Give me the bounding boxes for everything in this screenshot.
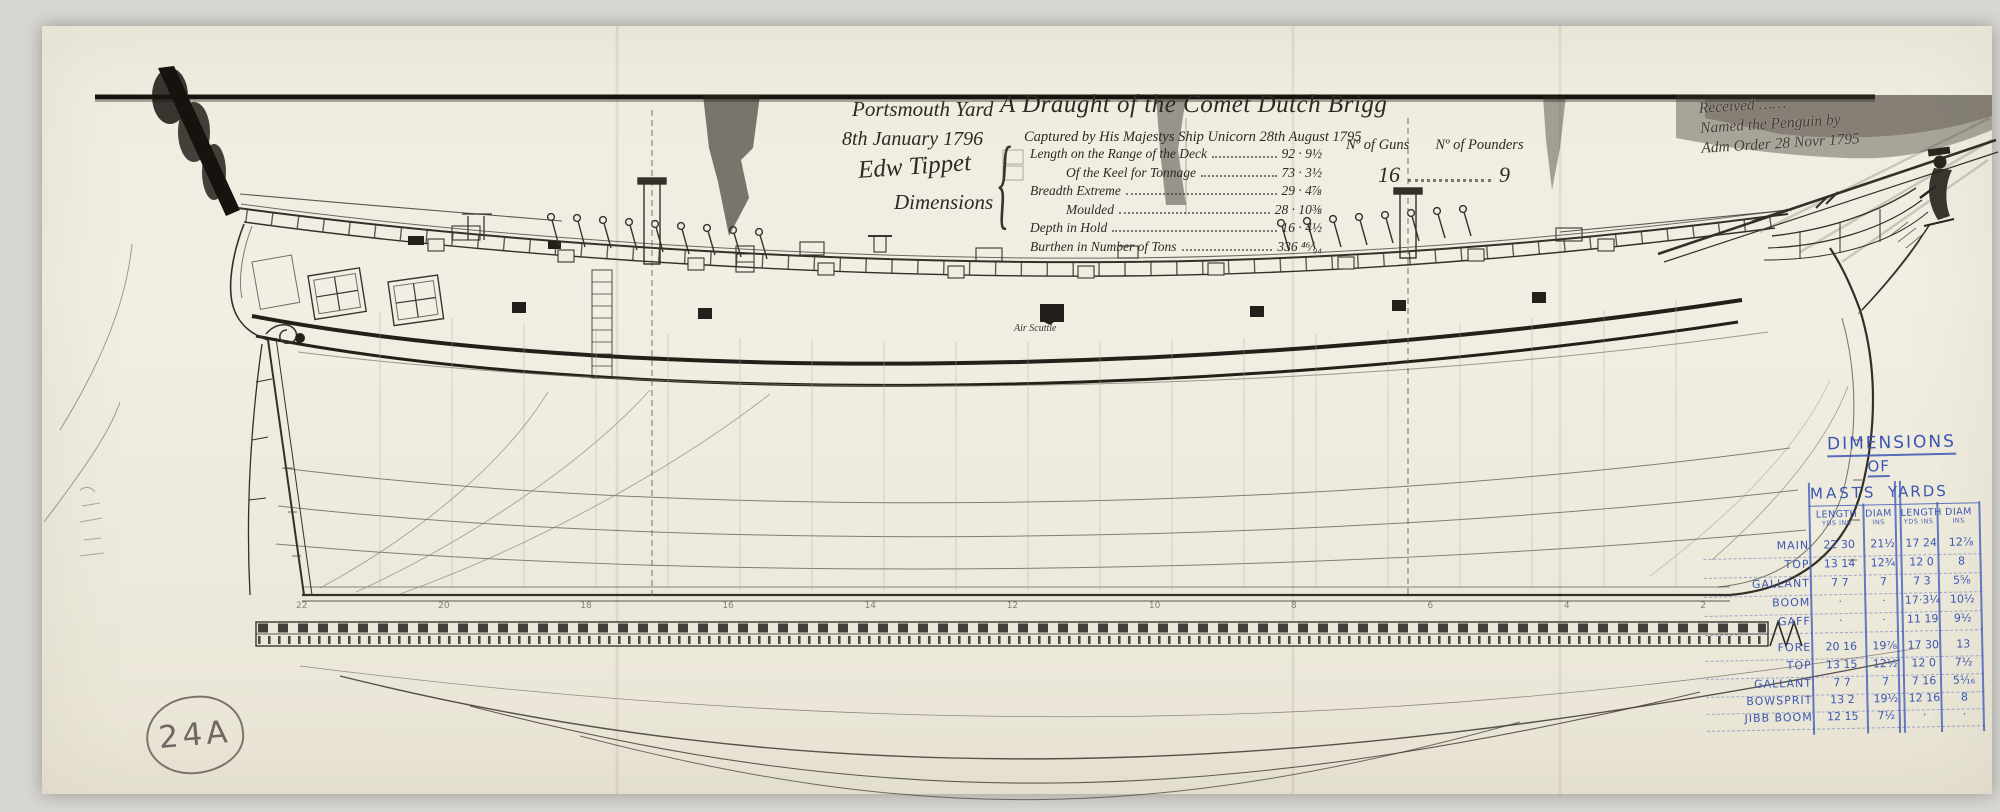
- yards-group-header: YARDS: [1888, 482, 1948, 501]
- station-number: 12: [1007, 601, 1018, 611]
- dimension-label: Of the Keel for Tonnage: [1066, 165, 1196, 181]
- dimension-label: Burthen in Number of Tons: [1030, 239, 1177, 255]
- received-annotation: Received …… Named the Penguin by Adm Ord…: [1698, 89, 1860, 159]
- table-title: DIMENSIONS: [1827, 432, 1956, 458]
- column-header: DIAM INS: [1938, 507, 1978, 526]
- station-number: 4: [1564, 601, 1570, 611]
- dimension-value: 73 · 3½: [1282, 165, 1323, 181]
- capture-note: Captured by His Majestys Ship Unicorn 28…: [1024, 129, 1362, 146]
- pounders-header: Nº of Pounders: [1435, 137, 1523, 154]
- dimensions-brace: {: [998, 128, 1011, 244]
- ensign-staff: [158, 66, 240, 216]
- station-number: 6: [1427, 601, 1433, 611]
- armament-values: 16 9: [1378, 162, 1510, 188]
- station-number: 10: [1149, 601, 1160, 611]
- yard-name: Portsmouth Yard: [852, 97, 993, 122]
- station-number: 16: [722, 601, 733, 611]
- draught-date: 8th January 1796: [842, 128, 983, 151]
- pencil-scribbles: [80, 487, 104, 556]
- station-number: 22: [296, 601, 307, 611]
- dimension-row: Length on the Range of the Deck 92 · 9½: [1030, 146, 1322, 165]
- column-header: LENGTH YDS INS: [1900, 508, 1936, 527]
- guns-count: 16: [1378, 162, 1400, 188]
- dimension-row: Depth in Hold 16 · 4½: [1030, 220, 1322, 239]
- dimension-row: Moulded 28 · 10⅜: [1030, 202, 1322, 221]
- station-number: 20: [438, 601, 449, 611]
- archive-mark-text: 24A: [157, 714, 233, 756]
- station-number: 8: [1291, 601, 1297, 611]
- dotted-leader: [1212, 156, 1277, 158]
- masts-group-header: MASTS: [1810, 483, 1877, 502]
- dotted-leader: [1408, 179, 1491, 182]
- dimensions-table: Length on the Range of the Deck 92 · 9½ …: [1030, 146, 1322, 257]
- dotted-leader: [1126, 193, 1277, 195]
- dimension-label: Moulded: [1066, 202, 1114, 218]
- dimension-row: Burthen in Number of Tons 336 ⁴⁶⁄₉₄: [1030, 239, 1322, 258]
- dimension-label: Breadth Extreme: [1030, 183, 1121, 199]
- dotted-leader: [1112, 230, 1276, 232]
- scanned-ship-draught: Portsmouth Yard 8th January 1796 A Draug…: [0, 0, 2000, 812]
- bottom-sweep-arcs: [300, 648, 1920, 800]
- dotted-leader: [1182, 249, 1273, 251]
- column-header: LENGTH YDS INS: [1810, 510, 1862, 529]
- dimension-value: 28 · 10⅜: [1275, 202, 1322, 218]
- column-header: DIAM INS: [1863, 509, 1893, 528]
- dimension-label: Depth in Hold: [1030, 220, 1107, 236]
- pounders-count: 9: [1499, 162, 1510, 188]
- armament-header: Nº of Guns Nº of Pounders: [1346, 137, 1524, 154]
- station-number: 14: [865, 601, 876, 611]
- mast-yard-dimensions-table: DIMENSIONS OF MASTS YARDS LENGTH YDS INS…: [1701, 423, 1990, 747]
- dimension-value: 92 · 9½: [1282, 146, 1323, 162]
- scale-bar: [256, 622, 1802, 646]
- air-scuttle-label: Air Scuttle: [1014, 323, 1057, 334]
- dimension-value: 336 ⁴⁶⁄₉₄: [1277, 239, 1322, 255]
- station-number: 18: [580, 601, 591, 611]
- left-margin-fragment: [44, 244, 132, 522]
- internal-construction-lines: [380, 300, 1676, 590]
- dotted-leader: [1119, 212, 1270, 214]
- deck-fittings: [452, 214, 1582, 378]
- dimension-value: 16 · 4½: [1282, 220, 1323, 236]
- dotted-leader: [1201, 175, 1277, 177]
- table-title-of: OF: [1867, 457, 1890, 477]
- draught-title: A Draught of the Comet Dutch Brigg: [1000, 91, 1387, 119]
- dimension-row: Of the Keel for Tonnage 73 · 3½: [1030, 165, 1322, 184]
- dimensions-label: Dimensions: [894, 190, 993, 215]
- dimension-label: Length on the Range of the Deck: [1030, 146, 1207, 162]
- guns-header: Nº of Guns: [1346, 137, 1409, 154]
- dimension-value: 29 · 4⅞: [1282, 183, 1323, 199]
- dimension-row: Breadth Extreme 29 · 4⅞: [1030, 183, 1322, 202]
- station-numbers: 22 20 18 16 14 12 10 8 6 4 2: [296, 601, 1706, 611]
